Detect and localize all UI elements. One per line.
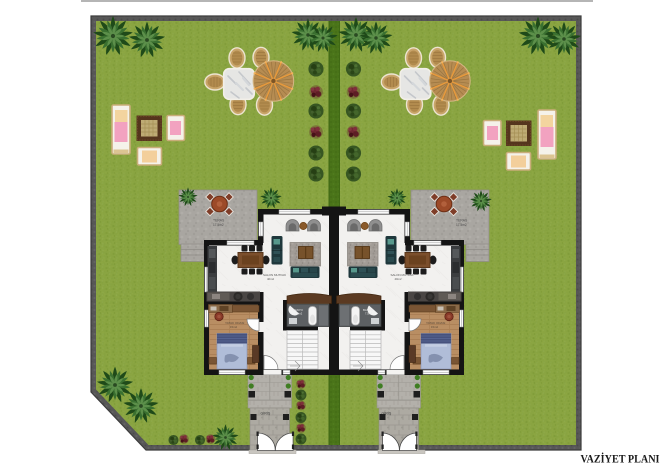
svg-text:VAZİYET PLANI: VAZİYET PLANI [581,454,661,466]
svg-text:40m2: 40m2 [395,277,402,281]
svg-text:GİRİŞ: GİRİŞ [382,411,392,416]
svg-text:7.5m2: 7.5m2 [295,312,303,316]
svg-text:BANYO: BANYO [293,308,304,312]
svg-text:40m2: 40m2 [267,277,274,281]
svg-text:BANYO: BANYO [363,308,374,312]
svg-text:15m2: 15m2 [230,325,237,329]
svg-text:GİRİŞ: GİRİŞ [261,411,271,416]
svg-text:15m2: 15m2 [431,325,438,329]
svg-text:17.5m2: 17.5m2 [456,223,467,227]
svg-text:17.5m2: 17.5m2 [213,223,224,227]
svg-text:7.5m2: 7.5m2 [365,312,373,316]
